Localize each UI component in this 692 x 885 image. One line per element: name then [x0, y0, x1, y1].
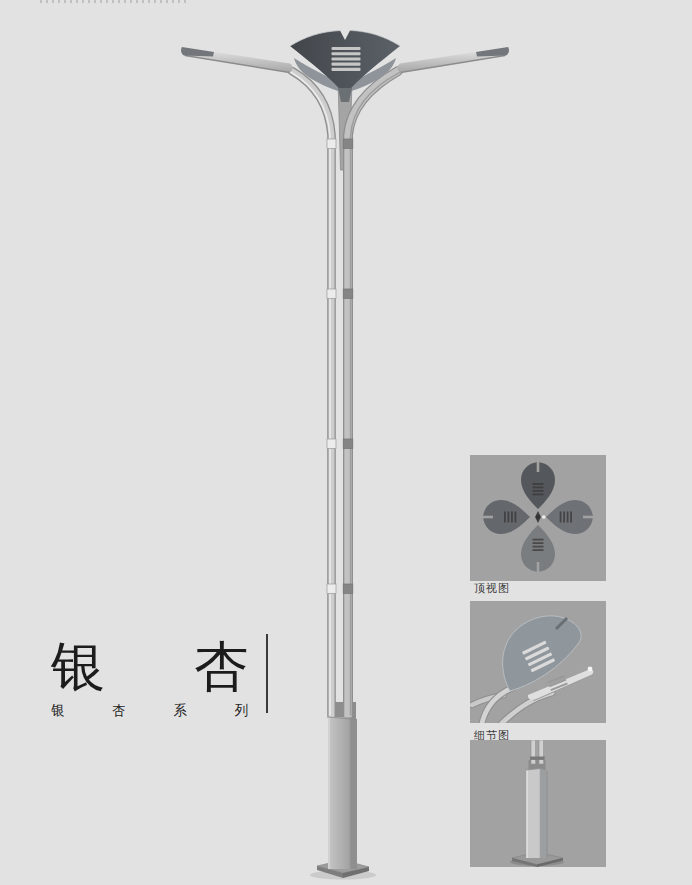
- top-view-label: 顶视图: [474, 582, 510, 594]
- base-view-image: [470, 740, 606, 867]
- series-char-1: 银: [51, 702, 65, 720]
- figure-base-view: [470, 740, 606, 867]
- series-char-3: 系: [173, 702, 187, 720]
- series-char-4: 列: [234, 702, 248, 720]
- pole-arms-and-tubes: [291, 71, 399, 716]
- top-view-image: [470, 455, 606, 581]
- detail-view-image: [470, 601, 606, 723]
- base-column: [328, 717, 357, 869]
- title-divider-line: [266, 634, 268, 713]
- left-lamp-head: [181, 47, 293, 73]
- figure-top-view: [470, 455, 606, 581]
- title-block: 银 杏 银 杏 系 列: [51, 639, 248, 720]
- series-char-2: 杏: [112, 702, 126, 720]
- title-char-1: 银: [51, 639, 105, 693]
- figure-detail-view: [470, 601, 606, 723]
- crown: [290, 31, 400, 103]
- base-view-column: [526, 769, 548, 859]
- right-lamp-head: [397, 47, 509, 73]
- title-char-2: 杏: [194, 639, 248, 693]
- series-subtitle: 银 杏 系 列: [51, 702, 248, 720]
- page-title: 银 杏: [51, 639, 248, 693]
